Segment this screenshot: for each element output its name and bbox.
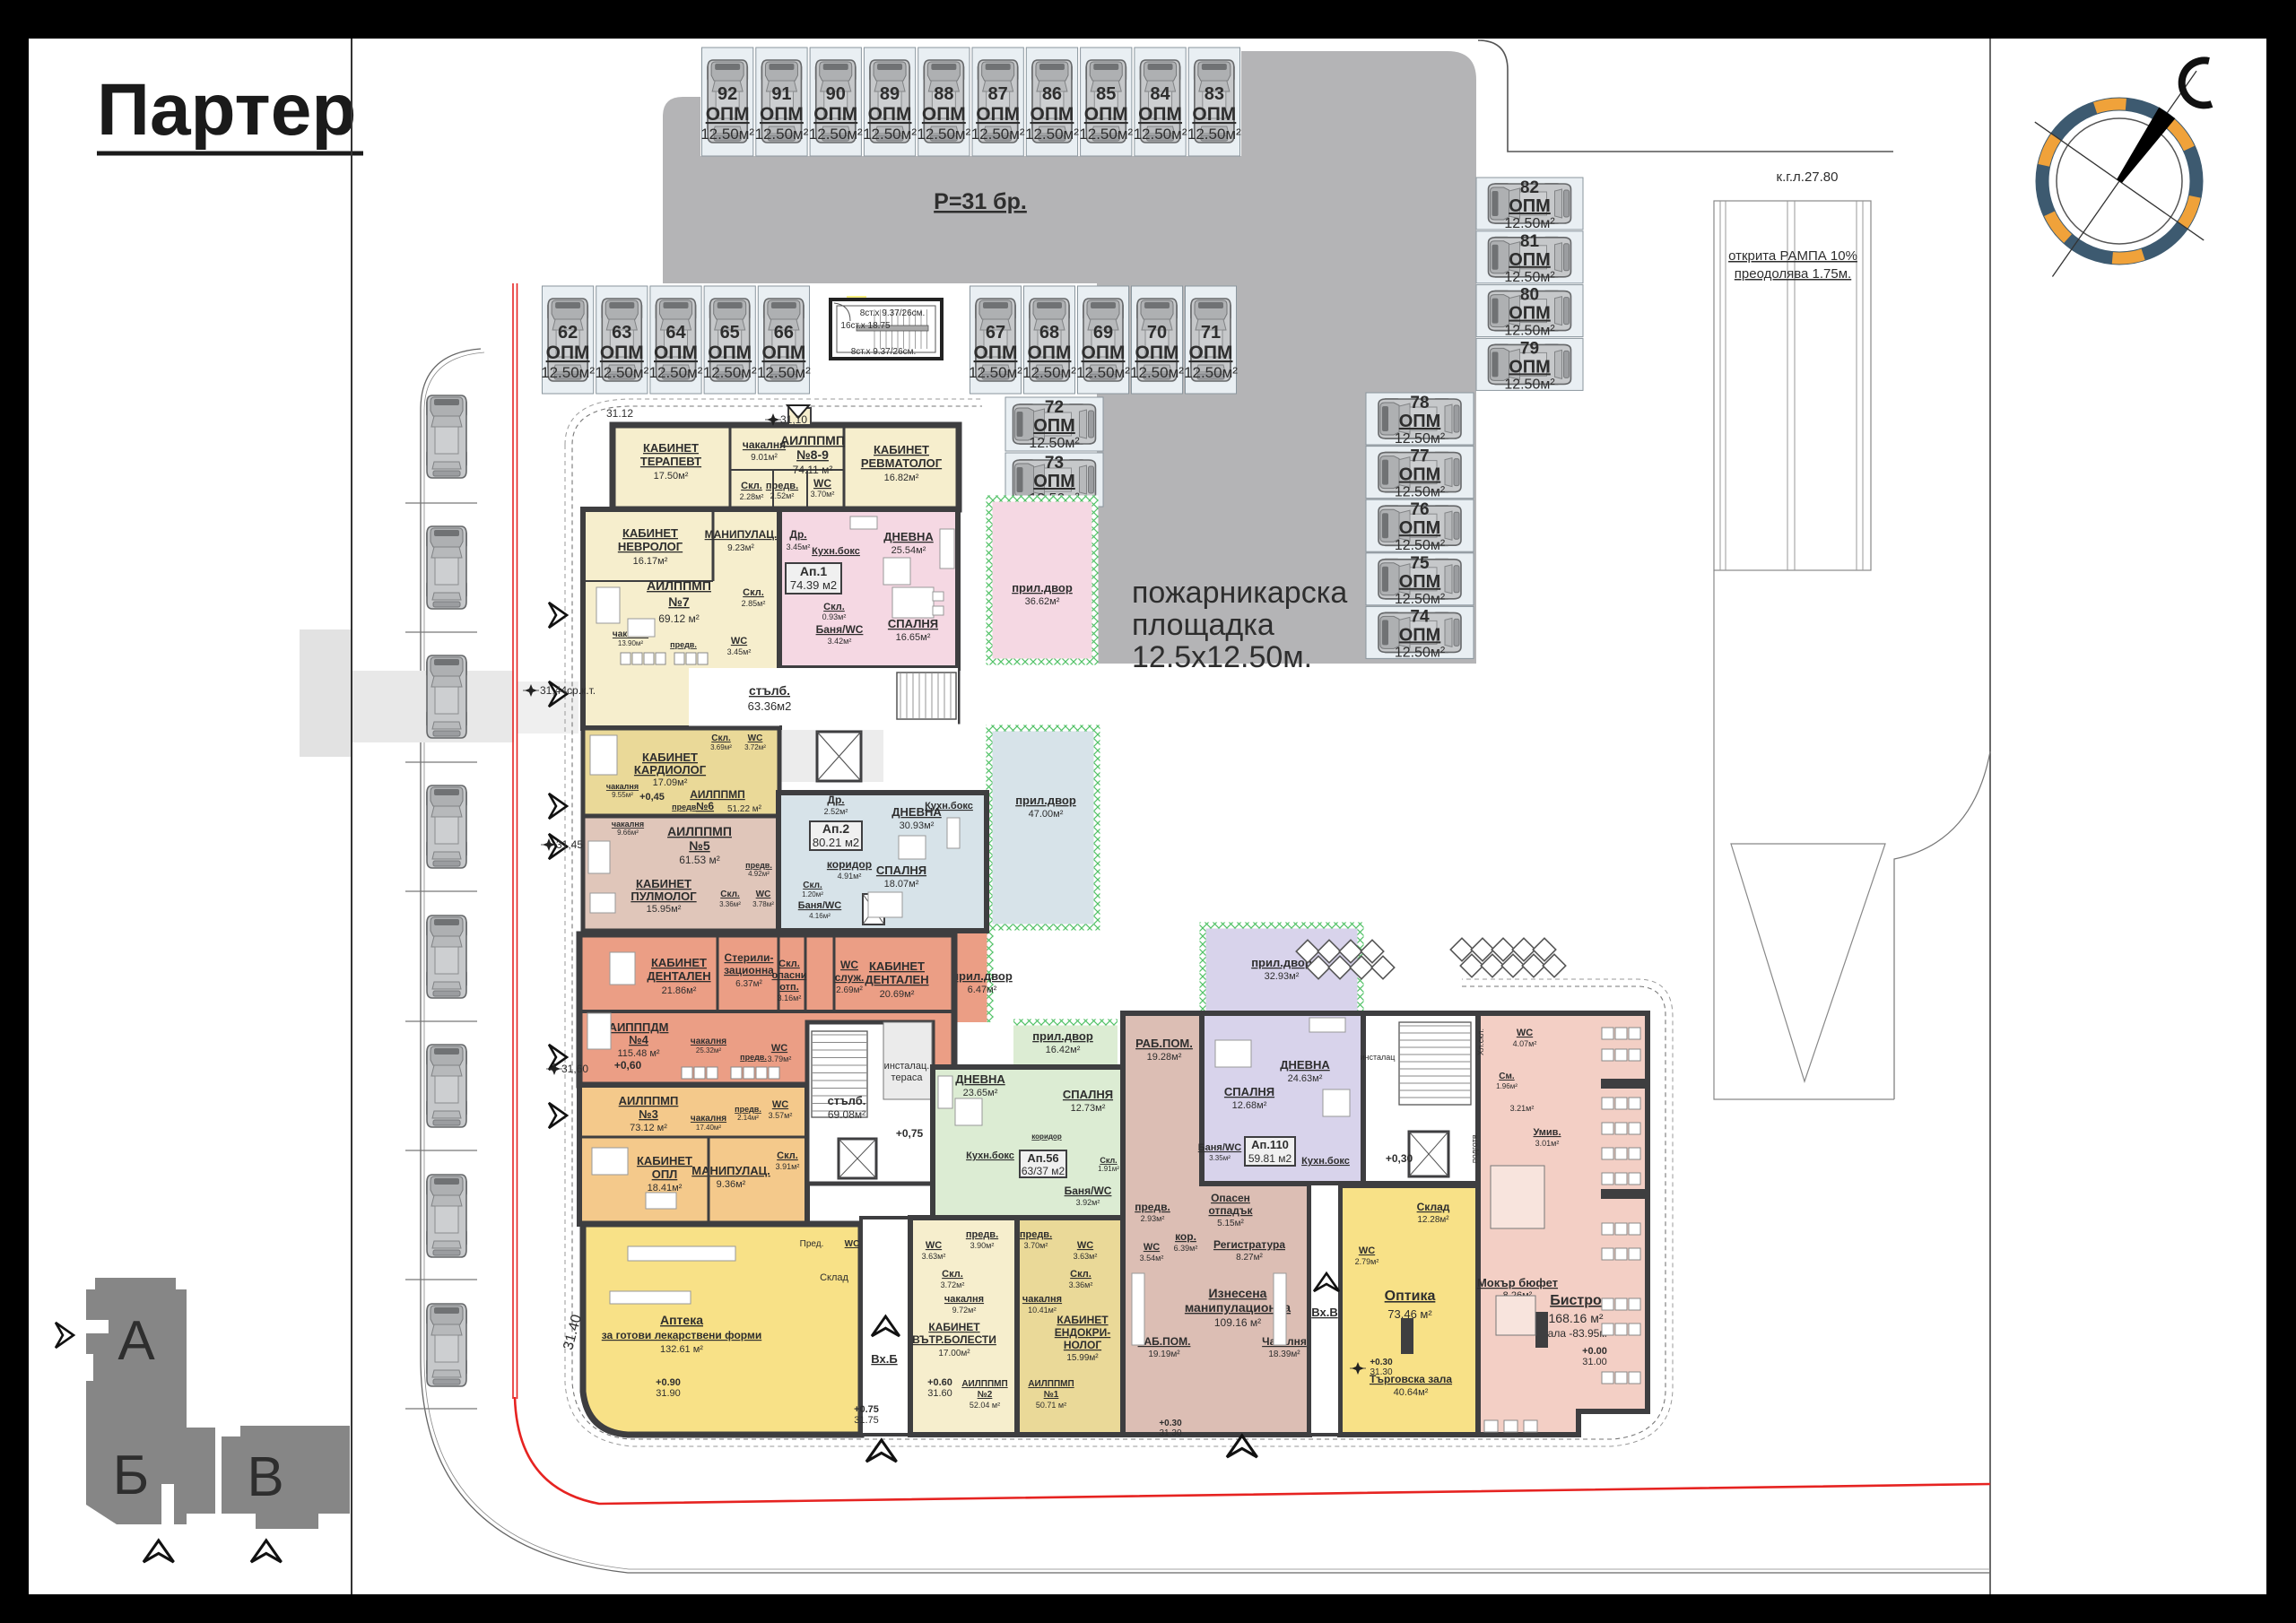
svg-text:76: 76	[1410, 500, 1429, 519]
svg-text:предв.: предв.	[735, 1105, 761, 1114]
svg-text:№4: №4	[629, 1033, 648, 1046]
svg-text:31,45: 31,45	[556, 838, 583, 851]
svg-text:5.15м²: 5.15м²	[1217, 1219, 1244, 1228]
svg-text:12.50м²: 12.50м²	[971, 126, 1025, 143]
svg-text:WC: WC	[756, 890, 771, 899]
svg-text:прил.двор: прил.двор	[1012, 581, 1073, 595]
svg-text:ЕНДОКРИ-: ЕНДОКРИ-	[1055, 1326, 1111, 1339]
svg-text:23.65м²: 23.65м²	[963, 1088, 998, 1098]
svg-text:ДНЕВНА: ДНЕВНА	[891, 805, 942, 819]
svg-text:НЕВРОЛОГ: НЕВРОЛОГ	[618, 540, 683, 553]
svg-text:ДНЕВНА: ДНЕВНА	[955, 1072, 1005, 1086]
svg-text:ВЪТР.БОЛЕСТИ: ВЪТР.БОЛЕСТИ	[912, 1333, 996, 1346]
svg-text:инсталац.: инсталац.	[884, 1061, 930, 1072]
svg-text:88: 88	[934, 84, 953, 104]
svg-text:Зала -83.95м²: Зала -83.95м²	[1541, 1327, 1610, 1340]
svg-text:3.21м²: 3.21м²	[1510, 1104, 1535, 1113]
svg-text:3.45м²: 3.45м²	[787, 542, 811, 551]
svg-text:WC: WC	[840, 959, 858, 971]
svg-text:подготв.: подготв.	[1470, 1133, 1479, 1163]
svg-text:64: 64	[665, 323, 686, 343]
svg-text:Партер: Партер	[97, 69, 356, 151]
svg-text:+0.30: +0.30	[1159, 1419, 1182, 1428]
svg-text:3.90м²: 3.90м²	[970, 1241, 995, 1250]
svg-text:Опасен: Опасен	[1211, 1192, 1250, 1204]
svg-text:WC: WC	[771, 1043, 787, 1054]
svg-text:ОПМ: ОПМ	[1192, 104, 1236, 125]
svg-text:КАБИНЕТ: КАБИНЕТ	[622, 526, 678, 540]
svg-text:РАБ.ПОМ.: РАБ.ПОМ.	[1135, 1037, 1193, 1050]
svg-text:чакалня: чакалня	[691, 1037, 726, 1046]
svg-text:ОПМ: ОПМ	[1084, 104, 1128, 125]
svg-text:Ап.2: Ап.2	[822, 821, 849, 836]
svg-text:тераса: тераса	[891, 1072, 924, 1083]
svg-text:Скл.: Скл.	[741, 481, 762, 491]
svg-text:3.16м²: 3.16м²	[778, 994, 802, 1002]
svg-text:КАБИНЕТ: КАБИНЕТ	[651, 956, 707, 969]
svg-text:КАБИНЕТ: КАБИНЕТ	[637, 1154, 692, 1167]
svg-text:3.45м²: 3.45м²	[727, 647, 752, 656]
svg-text:87: 87	[988, 84, 1008, 104]
svg-text:24.63м²: 24.63м²	[1288, 1073, 1323, 1084]
svg-text:чакалня: чакалня	[1022, 1294, 1062, 1305]
svg-text:ОПМ: ОПМ	[974, 343, 1018, 363]
svg-text:12.50м²: 12.50м²	[1504, 377, 1555, 392]
svg-text:Скл.: Скл.	[942, 1269, 963, 1280]
svg-text:25.32м²: 25.32м²	[696, 1046, 722, 1055]
svg-text:Регистратура: Регистратура	[1213, 1238, 1285, 1251]
svg-text:12.73м²: 12.73м²	[1071, 1103, 1106, 1114]
svg-text:ОПМ: ОПМ	[1399, 572, 1441, 592]
svg-text:+0.75: +0.75	[854, 1404, 879, 1415]
svg-text:Скл.: Скл.	[720, 890, 740, 899]
svg-text:12.68м²: 12.68м²	[1232, 1100, 1267, 1111]
svg-text:13.90м²: 13.90м²	[618, 639, 644, 647]
svg-text:+0,45: +0,45	[639, 792, 665, 803]
svg-text:17.00м²: 17.00м²	[938, 1349, 970, 1358]
svg-text:4.16м²: 4.16м²	[809, 912, 831, 920]
svg-text:3.70м²: 3.70м²	[1024, 1241, 1048, 1250]
svg-text:ДЕНТАЛЕН: ДЕНТАЛЕН	[647, 969, 710, 983]
svg-text:WC: WC	[1517, 1028, 1533, 1038]
svg-text:Скл.: Скл.	[1070, 1269, 1091, 1280]
svg-text:12.50м²: 12.50м²	[863, 126, 917, 143]
svg-text:Р=31 бр.: Р=31 бр.	[934, 189, 1027, 214]
svg-text:80: 80	[1520, 286, 1539, 305]
svg-text:чакалня: чакалня	[606, 782, 639, 791]
svg-text:стълб.: стълб.	[749, 683, 790, 698]
svg-text:Оптика: Оптика	[1385, 1289, 1436, 1304]
svg-text:WC: WC	[1077, 1240, 1093, 1251]
svg-text:ОПМ: ОПМ	[1033, 472, 1075, 491]
svg-text:84: 84	[1150, 84, 1170, 104]
svg-text:МАНИПУЛАЦ.: МАНИПУЛАЦ.	[691, 1164, 770, 1177]
svg-text:ДНЕВНА: ДНЕВНА	[1280, 1058, 1330, 1072]
svg-text:66: 66	[774, 323, 794, 343]
svg-text:1.20м²: 1.20м²	[802, 890, 823, 898]
svg-text:Скл.: Скл.	[743, 587, 764, 598]
svg-text:прил.двор: прил.двор	[1015, 794, 1076, 807]
svg-text:площадка: площадка	[1132, 608, 1274, 642]
svg-text:ОПМ: ОПМ	[706, 104, 750, 125]
svg-text:3.57м²: 3.57м²	[769, 1111, 793, 1120]
svg-text:опасни: опасни	[771, 970, 806, 981]
svg-text:коридор: коридор	[827, 858, 872, 871]
svg-text:ОПМ: ОПМ	[1189, 343, 1233, 363]
svg-text:31.12: 31.12	[606, 407, 633, 420]
svg-text:№1: №1	[1044, 1390, 1059, 1400]
svg-text:15.99м²: 15.99м²	[1066, 1353, 1099, 1363]
svg-text:36.62м²: 36.62м²	[1025, 596, 1060, 607]
svg-text:МАНИПУЛАЦ.: МАНИПУЛАЦ.	[705, 528, 778, 541]
svg-text:12.50м²: 12.50м²	[703, 364, 757, 381]
svg-text:Ап.56: Ап.56	[1027, 1151, 1058, 1165]
svg-text:12.50м²: 12.50м²	[1395, 485, 1446, 500]
svg-text:WC: WC	[748, 733, 763, 743]
svg-text:3.63м²: 3.63м²	[922, 1252, 946, 1261]
svg-text:№6: №6	[696, 800, 714, 812]
svg-text:18.39м²: 18.39м²	[1268, 1350, 1300, 1359]
svg-text:16.82м²: 16.82м²	[884, 473, 919, 483]
svg-text:16ст.х 18.75: 16ст.х 18.75	[840, 321, 891, 331]
svg-text:92: 92	[717, 84, 737, 104]
svg-text:12.50м²: 12.50м²	[1130, 364, 1184, 381]
svg-text:предв.: предв.	[672, 803, 699, 811]
svg-text:Кухн.бокс: Кухн.бокс	[812, 546, 860, 557]
svg-text:2.28м²: 2.28м²	[740, 492, 764, 501]
svg-text:50.71 м²: 50.71 м²	[1036, 1401, 1066, 1410]
svg-text:Умив.: Умив.	[1533, 1127, 1561, 1138]
svg-text:9.01м²: 9.01м²	[751, 453, 778, 463]
svg-text:РЕВМАТОЛОГ: РЕВМАТОЛОГ	[861, 456, 943, 470]
svg-text:ОПМ: ОПМ	[1135, 343, 1179, 363]
svg-text:61.53 м²: 61.53 м²	[679, 854, 720, 866]
svg-text:ОПМ: ОПМ	[1509, 304, 1551, 324]
svg-text:21.86м²: 21.86м²	[662, 985, 697, 996]
svg-text:ОПМ: ОПМ	[868, 104, 912, 125]
svg-text:КАБИНЕТ: КАБИНЕТ	[869, 959, 925, 973]
svg-text:69.12 м²: 69.12 м²	[658, 612, 700, 625]
svg-text:31.90: 31.90	[656, 1388, 681, 1399]
svg-text:18.07м²: 18.07м²	[884, 879, 919, 890]
svg-text:12.50м²: 12.50м²	[1022, 364, 1076, 381]
svg-text:Ап.110: Ап.110	[1251, 1138, 1289, 1151]
svg-text:1.91м²: 1.91м²	[1098, 1165, 1119, 1173]
svg-text:Баня/WC: Баня/WC	[816, 623, 864, 636]
svg-text:№2: №2	[978, 1390, 993, 1400]
svg-text:WC: WC	[1359, 1245, 1375, 1256]
svg-text:17.50м²: 17.50м²	[654, 471, 689, 482]
svg-text:КАБИНЕТ: КАБИНЕТ	[1057, 1314, 1109, 1326]
svg-text:3.69м²: 3.69м²	[710, 743, 732, 751]
svg-text:52.04 м²: 52.04 м²	[970, 1401, 1000, 1410]
svg-text:преодолява 1.75м.: преодолява 1.75м.	[1735, 266, 1851, 282]
svg-text:ОПМ: ОПМ	[1509, 196, 1551, 216]
svg-text:69.08м²: 69.08м²	[828, 1108, 865, 1121]
svg-text:КАБИНЕТ: КАБИНЕТ	[643, 441, 699, 455]
svg-text:+0,75: +0,75	[896, 1127, 924, 1140]
svg-text:51.22 м²: 51.22 м²	[727, 804, 762, 814]
svg-text:ТЕРАПЕВТ: ТЕРАПЕВТ	[640, 455, 701, 468]
svg-text:8ст.х 9.37/26см.: 8ст.х 9.37/26см.	[860, 308, 926, 318]
svg-text:Др.: Др.	[827, 794, 844, 806]
svg-text:отпадък: отпадък	[1208, 1204, 1253, 1217]
svg-text:ДЕНТАЛЕН: ДЕНТАЛЕН	[865, 973, 928, 986]
svg-text:19.19м²: 19.19м²	[1148, 1350, 1180, 1359]
svg-text:12.50м²: 12.50м²	[649, 364, 703, 381]
svg-text:Баня/WC: Баня/WC	[1198, 1142, 1242, 1153]
svg-text:за готови лекарствени форми: за готови лекарствени форми	[602, 1329, 761, 1341]
svg-text:См.: См.	[1499, 1072, 1515, 1081]
svg-text:9.72м²: 9.72м²	[952, 1306, 977, 1315]
svg-text:86: 86	[1042, 84, 1062, 104]
svg-text:+0.00: +0.00	[1582, 1346, 1607, 1357]
svg-text:ОПМ: ОПМ	[1399, 465, 1441, 485]
svg-text:31.00: 31.00	[1582, 1357, 1607, 1367]
svg-text:WC: WC	[813, 477, 831, 490]
svg-text:№7: №7	[668, 595, 690, 609]
svg-text:12.50м²: 12.50м²	[1076, 364, 1130, 381]
svg-text:1.96м²: 1.96м²	[1496, 1082, 1518, 1090]
svg-text:9.36м²: 9.36м²	[717, 1179, 746, 1190]
svg-text:пожарникарска: пожарникарска	[1132, 576, 1347, 610]
svg-text:16.17м²: 16.17м²	[633, 556, 668, 567]
svg-text:WC: WC	[731, 636, 747, 647]
svg-text:КАБИНЕТ: КАБИНЕТ	[642, 751, 698, 764]
svg-text:ОПМ: ОПМ	[760, 104, 804, 125]
svg-text:3.54м²: 3.54м²	[1140, 1254, 1164, 1263]
svg-text:предв.: предв.	[1135, 1201, 1170, 1213]
svg-text:74.39 м2: 74.39 м2	[790, 578, 837, 592]
svg-text:168.16 м²: 168.16 м²	[1549, 1311, 1604, 1325]
svg-text:ОПМ: ОПМ	[1399, 412, 1441, 431]
svg-text:12.50м²: 12.50м²	[755, 126, 809, 143]
svg-text:6.47м²: 6.47м²	[968, 985, 997, 995]
svg-text:31,44ср.к.т.: 31,44ср.к.т.	[540, 684, 596, 697]
svg-text:12.50м²: 12.50м²	[1395, 431, 1446, 447]
svg-text:12.50м²: 12.50м²	[1187, 126, 1241, 143]
svg-text:3.35м²: 3.35м²	[1209, 1154, 1231, 1162]
svg-text:15.95м²: 15.95м²	[647, 904, 682, 915]
svg-text:80.21 м2: 80.21 м2	[813, 836, 859, 849]
svg-text:12.50м²: 12.50м²	[1184, 364, 1238, 381]
svg-text:31.75: 31.75	[854, 1415, 879, 1426]
svg-text:4.07м²: 4.07м²	[1513, 1039, 1537, 1048]
svg-text:ОПМ: ОПМ	[1082, 343, 1126, 363]
svg-text:АИЛППМП: АИЛППМП	[647, 578, 711, 593]
svg-text:АИЛППМП: АИЛППМП	[619, 1094, 679, 1107]
svg-text:КАБИНЕТ: КАБИНЕТ	[636, 877, 691, 890]
svg-text:Скл.: Скл.	[711, 733, 731, 743]
svg-text:№5: №5	[689, 838, 710, 853]
svg-text:Баня/WC: Баня/WC	[798, 900, 842, 911]
svg-text:ОПМ: ОПМ	[654, 343, 698, 363]
svg-text:Аптека: Аптека	[660, 1313, 703, 1327]
svg-text:№8-9: №8-9	[796, 447, 829, 462]
svg-text:74.11 м²: 74.11 м²	[793, 464, 833, 476]
svg-text:9.55м²: 9.55м²	[612, 791, 633, 799]
svg-text:12.50м²: 12.50м²	[757, 364, 811, 381]
svg-text:2.93м²: 2.93м²	[1141, 1214, 1165, 1223]
svg-text:12.50м²: 12.50м²	[917, 126, 970, 143]
svg-text:ОПМ: ОПМ	[546, 343, 590, 363]
svg-text:Скл.: Скл.	[1100, 1156, 1117, 1165]
svg-text:предв.: предв.	[745, 861, 772, 870]
svg-text:16.65м²: 16.65м²	[896, 632, 931, 643]
svg-text:3.72м²: 3.72м²	[744, 743, 766, 751]
svg-text:81: 81	[1520, 232, 1540, 251]
svg-text:АИЛППМП: АИЛППМП	[961, 1379, 1007, 1389]
svg-text:6.37м²: 6.37м²	[735, 979, 762, 989]
svg-text:8ст.х 9.37/26см.: 8ст.х 9.37/26см.	[851, 347, 917, 357]
svg-text:№3: №3	[639, 1107, 658, 1121]
svg-text:прил.двор: прил.двор	[1032, 1029, 1093, 1043]
svg-text:Кухн.бокс: Кухн.бокс	[966, 1150, 1014, 1161]
svg-text:12.50м²: 12.50м²	[1079, 126, 1133, 143]
svg-text:зационна: зационна	[724, 964, 774, 976]
svg-text:СПАЛНЯ: СПАЛНЯ	[1063, 1088, 1113, 1101]
svg-text:Б: Б	[113, 1445, 150, 1506]
svg-text:предв.: предв.	[1020, 1229, 1052, 1240]
svg-text:12.28м²: 12.28м²	[1417, 1215, 1449, 1225]
svg-text:74: 74	[1410, 607, 1430, 626]
svg-text:3.70м²: 3.70м²	[811, 490, 835, 499]
svg-text:Ап.1: Ап.1	[800, 564, 827, 578]
svg-text:к.г.л.27.80: к.г.л.27.80	[1777, 169, 1839, 185]
svg-text:КАБИНЕТ: КАБИНЕТ	[928, 1321, 980, 1333]
svg-text:32.93м²: 32.93м²	[1265, 971, 1300, 982]
svg-text:А: А	[117, 1310, 155, 1372]
svg-text:77: 77	[1410, 447, 1429, 466]
svg-text:предв.: предв.	[966, 1229, 998, 1240]
svg-text:ОПМ: ОПМ	[976, 104, 1020, 125]
svg-text:31.60: 31.60	[927, 1388, 952, 1399]
svg-text:чакалня: чакалня	[743, 438, 786, 451]
svg-text:31.30: 31.30	[1159, 1428, 1181, 1438]
svg-text:+0.90: +0.90	[656, 1377, 681, 1388]
svg-text:3.78м²: 3.78м²	[752, 900, 774, 908]
svg-text:0.93м²: 0.93м²	[822, 612, 847, 621]
svg-text:АИЛППМП: АИЛППМП	[780, 433, 845, 447]
svg-text:17.40м²: 17.40м²	[696, 1124, 722, 1132]
svg-text:ОПМ: ОПМ	[1138, 104, 1182, 125]
svg-text:В: В	[247, 1446, 283, 1508]
svg-text:АИЛППМП: АИЛППМП	[690, 788, 745, 801]
svg-text:2.85м²: 2.85м²	[742, 599, 766, 608]
svg-text:2.14м²: 2.14м²	[737, 1114, 759, 1122]
svg-text:ОПМ: ОПМ	[1030, 104, 1074, 125]
svg-text:85: 85	[1096, 84, 1116, 104]
svg-text:16.42м²: 16.42м²	[1046, 1045, 1081, 1055]
svg-text:кор.: кор.	[1175, 1230, 1196, 1243]
svg-text:18.41м²: 18.41м²	[648, 1183, 683, 1193]
svg-text:25.54м²: 25.54м²	[891, 545, 926, 556]
svg-text:служ.: служ.	[835, 971, 865, 984]
svg-text:6.39м²: 6.39м²	[1174, 1244, 1198, 1253]
svg-text:12.50м²: 12.50м²	[1504, 324, 1555, 339]
svg-text:ОПМ: ОПМ	[1028, 343, 1072, 363]
svg-text:4.91м²: 4.91м²	[838, 872, 862, 881]
svg-text:31,60: 31,60	[561, 1063, 588, 1075]
svg-text:СПАЛНЯ: СПАЛНЯ	[888, 617, 938, 630]
svg-text:АИЛППМП: АИЛППМП	[1028, 1379, 1074, 1389]
svg-text:90: 90	[826, 84, 846, 104]
svg-text:9.23м²: 9.23м²	[727, 543, 754, 553]
svg-text:ПУЛМОЛОГ: ПУЛМОЛОГ	[631, 890, 697, 903]
svg-text:12.50м²: 12.50м²	[1395, 592, 1446, 607]
svg-text:73.12 м²: 73.12 м²	[630, 1123, 667, 1133]
svg-text:68: 68	[1039, 323, 1059, 343]
svg-text:12.50м²: 12.50м²	[700, 126, 754, 143]
svg-text:ОПМ: ОПМ	[761, 343, 805, 363]
svg-text:Изнесена: Изнесена	[1209, 1286, 1267, 1300]
svg-text:ОПМ: ОПМ	[1033, 416, 1075, 436]
svg-text:АИПППДМ: АИПППДМ	[609, 1020, 669, 1034]
svg-text:3.63м²: 3.63м²	[1074, 1252, 1098, 1261]
svg-text:31,10: 31,10	[780, 413, 807, 426]
svg-text:3.01м²: 3.01м²	[1535, 1139, 1560, 1148]
svg-text:ОПМ: ОПМ	[1509, 250, 1551, 270]
svg-text:Скл.: Скл.	[778, 959, 800, 969]
svg-text:WC: WC	[926, 1240, 942, 1251]
svg-text:79: 79	[1520, 339, 1539, 358]
svg-text:+0.60: +0.60	[927, 1377, 952, 1388]
svg-text:31.30: 31.30	[1370, 1367, 1392, 1377]
svg-text:63: 63	[612, 323, 631, 343]
svg-text:12.50м²: 12.50м²	[595, 364, 648, 381]
svg-text:65: 65	[720, 323, 740, 343]
svg-text:прил.двор: прил.двор	[952, 969, 1013, 983]
svg-text:WC: WC	[845, 1239, 860, 1249]
svg-text:59.81 м2: 59.81 м2	[1248, 1152, 1292, 1165]
svg-text:предв.: предв.	[766, 481, 798, 491]
svg-text:ОПЛ: ОПЛ	[652, 1167, 678, 1181]
svg-text:9.66м²: 9.66м²	[617, 829, 639, 837]
svg-text:40.64м²: 40.64м²	[1394, 1387, 1429, 1398]
svg-text:12.50м²: 12.50м²	[1395, 538, 1446, 553]
svg-text:72: 72	[1045, 398, 1064, 417]
svg-text:чакалня: чакалня	[691, 1114, 726, 1124]
svg-text:чакалня: чакалня	[612, 820, 644, 829]
svg-text:63.36м2: 63.36м2	[748, 699, 792, 713]
svg-text:3.36м²: 3.36м²	[1069, 1280, 1093, 1289]
svg-text:Скл.: Скл.	[803, 881, 822, 890]
svg-text:63/37 м2: 63/37 м2	[1022, 1165, 1065, 1177]
svg-text:Вх.Б: Вх.Б	[871, 1352, 897, 1366]
svg-text:62: 62	[558, 323, 578, 343]
svg-text:ОПМ: ОПМ	[922, 104, 966, 125]
svg-text:ОПМ: ОПМ	[1399, 518, 1441, 538]
svg-text:12.50м²: 12.50м²	[1504, 216, 1555, 231]
svg-text:КАРДИОЛОГ: КАРДИОЛОГ	[634, 763, 707, 777]
svg-text:12.50м²: 12.50м²	[1025, 126, 1079, 143]
svg-text:Бистро: Бистро	[1550, 1293, 1602, 1308]
svg-text:Баня/WC: Баня/WC	[1065, 1185, 1112, 1197]
svg-text:115.48 м²: 115.48 м²	[617, 1048, 659, 1059]
svg-text:Склад: Склад	[820, 1272, 848, 1283]
svg-text:КАБИНЕТ: КАБИНЕТ	[874, 443, 929, 456]
svg-text:75: 75	[1410, 554, 1430, 573]
svg-text:Кухн.бокс: Кухн.бокс	[1301, 1156, 1350, 1167]
svg-text:РАБ.ПОМ.: РАБ.ПОМ.	[1138, 1335, 1191, 1348]
svg-text:73: 73	[1045, 454, 1064, 473]
svg-text:12.50м²: 12.50м²	[1395, 645, 1446, 660]
svg-text:ОПМ: ОПМ	[813, 104, 857, 125]
svg-text:АИЛППМП: АИЛППМП	[667, 824, 732, 838]
svg-text:НОЛОГ: НОЛОГ	[1064, 1339, 1101, 1351]
svg-text:+0,30: +0,30	[1386, 1152, 1413, 1165]
svg-text:12.50м²: 12.50м²	[809, 126, 863, 143]
